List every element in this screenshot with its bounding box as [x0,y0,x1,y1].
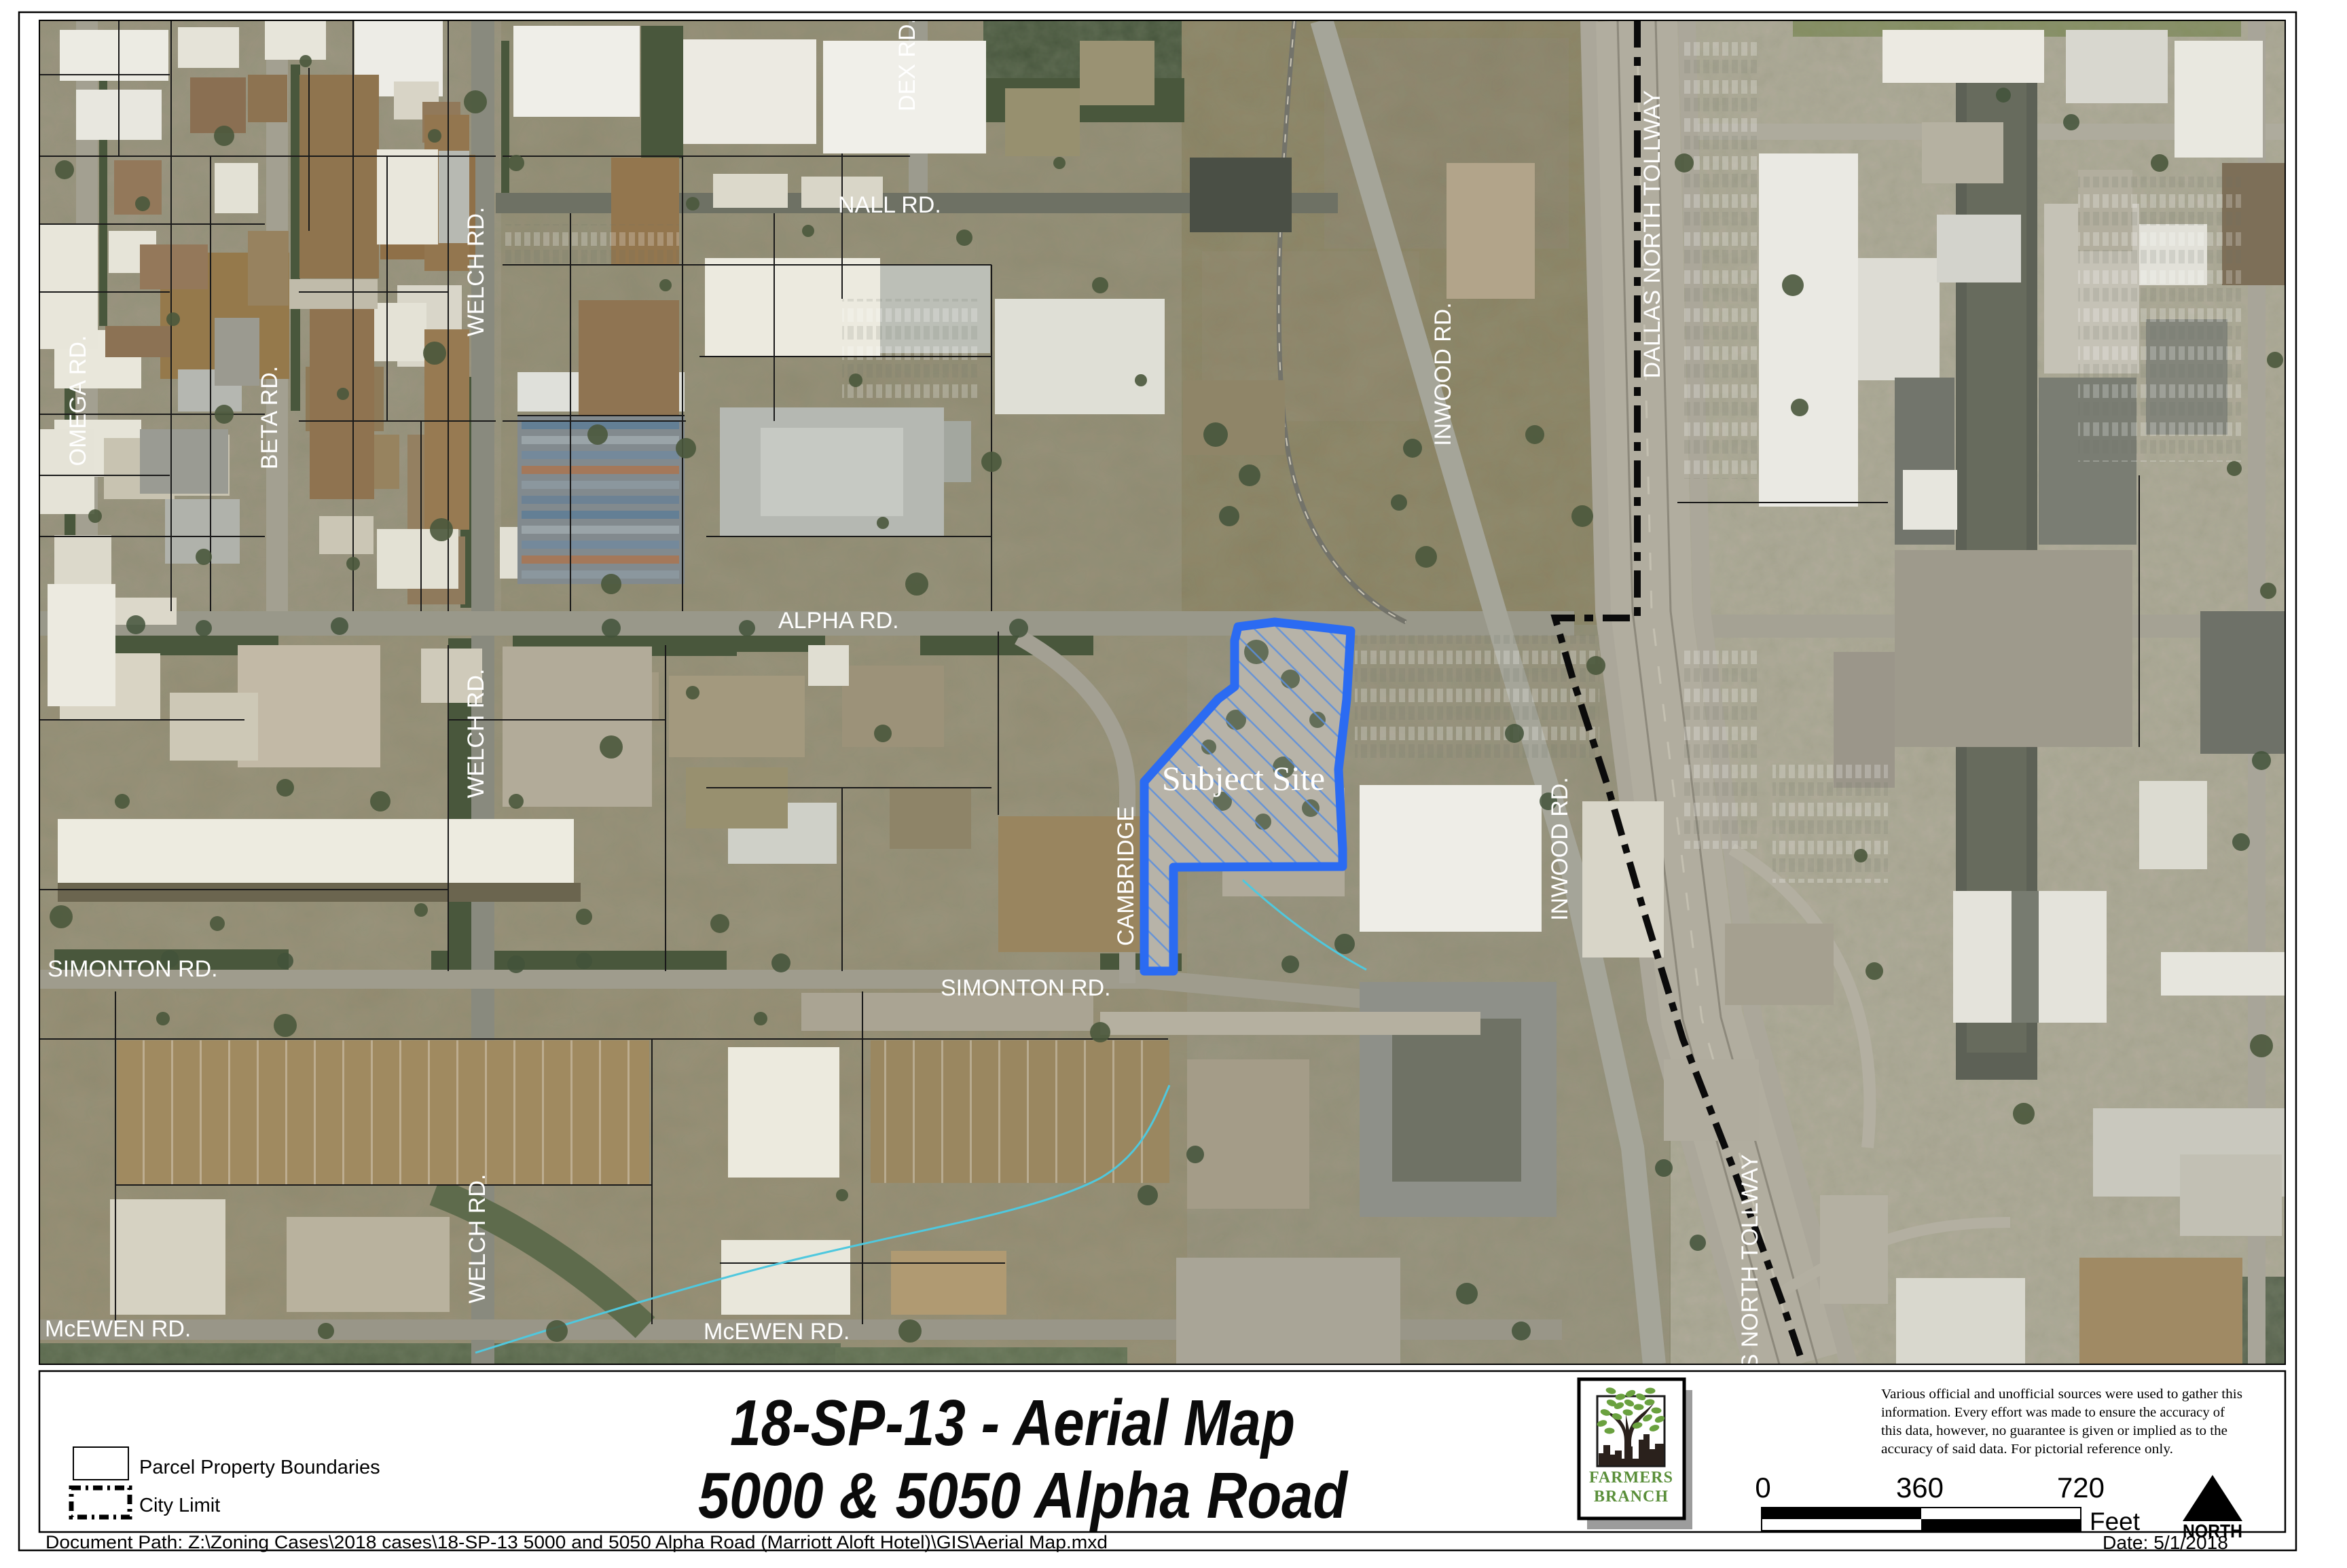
svg-text:this data, however, no guarant: this data, however, no guarantee is give… [1881,1423,2227,1438]
svg-text:18-SP-13 - Aerial Map: 18-SP-13 - Aerial Map [730,1387,1295,1459]
svg-text:BRANCH: BRANCH [1594,1488,1669,1506]
svg-text:information. Every effort was: information. Every effort was made to en… [1881,1405,2225,1420]
svg-text:360: 360 [1896,1472,1944,1503]
svg-text:Date: 5/1/2018: Date: 5/1/2018 [2103,1532,2228,1553]
svg-text:OMEGA RD.: OMEGA RD. [65,335,91,467]
svg-text:SIMONTON RD.: SIMONTON RD. [48,956,218,982]
svg-text:Document Path: Z:\Zoning Cases: Document Path: Z:\Zoning Cases\2018 case… [46,1532,1108,1552]
svg-text:0: 0 [1755,1472,1770,1503]
svg-text:WELCH RD.: WELCH RD. [463,207,489,337]
svg-text:Parcel Property Boundaries: Parcel Property Boundaries [139,1457,380,1478]
svg-text:720: 720 [2057,1472,2105,1503]
svg-text:WELCH RD.: WELCH RD. [465,1174,490,1304]
svg-text:S NORTH TOLLWAY: S NORTH TOLLWAY [1737,1154,1763,1370]
svg-text:5000 & 5050 Alpha Road: 5000 & 5050 Alpha Road [698,1459,1349,1532]
svg-text:ALPHA RD.: ALPHA RD. [778,608,899,634]
svg-text:FARMERS: FARMERS [1589,1469,1673,1487]
svg-text:Various official and unofficia: Various official and unofficial sources … [1881,1387,2242,1402]
svg-text:CAMBRIDGE: CAMBRIDGE [1113,806,1139,946]
svg-text:SIMONTON RD.: SIMONTON RD. [941,975,1111,1001]
svg-text:INWOOD RD.: INWOOD RD. [1547,777,1573,921]
svg-text:WELCH RD.: WELCH RD. [463,669,489,799]
svg-text:Subject Site: Subject Site [1162,759,1325,797]
svg-text:DEX RD.: DEX RD. [894,18,920,111]
svg-text:INWOOD RD.: INWOOD RD. [1430,302,1456,446]
svg-text:McEWEN RD.: McEWEN RD. [45,1316,191,1342]
svg-text:Feet: Feet [2090,1508,2141,1535]
svg-text:DALLAS NORTH TOLLWAY: DALLAS NORTH TOLLWAY [1639,90,1665,379]
svg-text:McEWEN RD.: McEWEN RD. [704,1319,850,1345]
svg-text:City Limit: City Limit [139,1495,220,1516]
svg-text:accuracy of said data. For pi: accuracy of said data. For pictorial ref… [1881,1442,2173,1457]
svg-text:BETA RD.: BETA RD. [257,366,283,469]
svg-text:NALL RD.: NALL RD. [838,192,941,218]
